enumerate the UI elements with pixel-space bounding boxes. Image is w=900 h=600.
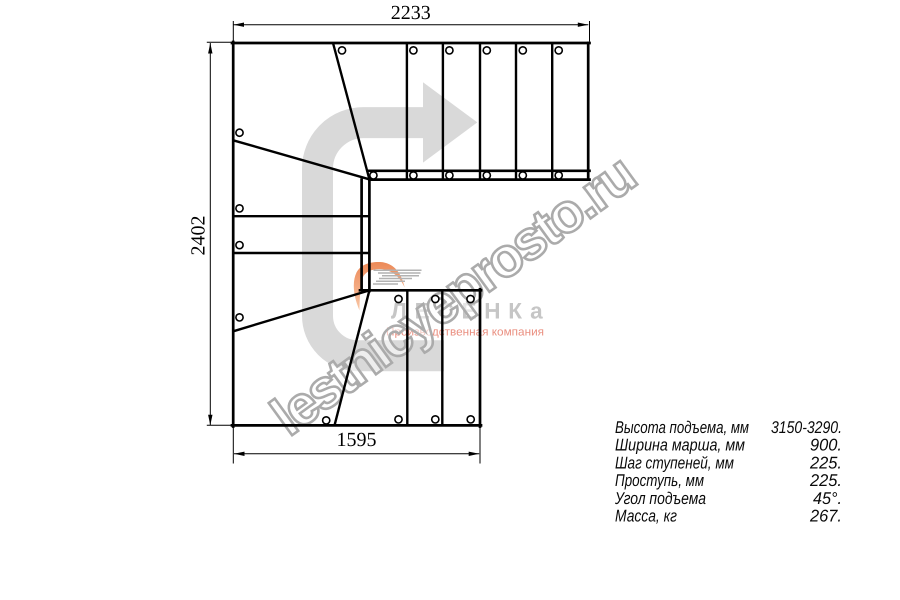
svg-text:Ширина марша, мм: Ширина марша, мм bbox=[615, 436, 745, 455]
svg-text:Проступь, мм: Проступь, мм bbox=[615, 471, 704, 490]
svg-text:225.: 225. bbox=[809, 471, 842, 490]
svg-text:1595: 1595 bbox=[337, 429, 377, 451]
svg-text:Угол подъема: Угол подъема bbox=[614, 489, 706, 508]
svg-text:225.: 225. bbox=[809, 453, 842, 472]
svg-text:45°.: 45°. bbox=[813, 489, 842, 508]
svg-text:2402: 2402 bbox=[188, 216, 210, 256]
svg-text:3150-3290.: 3150-3290. bbox=[771, 418, 842, 437]
svg-text:Шаг ступеней, мм: Шаг ступеней, мм bbox=[615, 453, 734, 472]
svg-text:Высота подъема, мм: Высота подъема, мм bbox=[615, 418, 749, 437]
svg-text:Масса, кг: Масса, кг bbox=[615, 507, 677, 526]
svg-text:900.: 900. bbox=[810, 436, 842, 455]
svg-text:267.: 267. bbox=[809, 507, 842, 526]
svg-text:2233: 2233 bbox=[391, 2, 431, 24]
